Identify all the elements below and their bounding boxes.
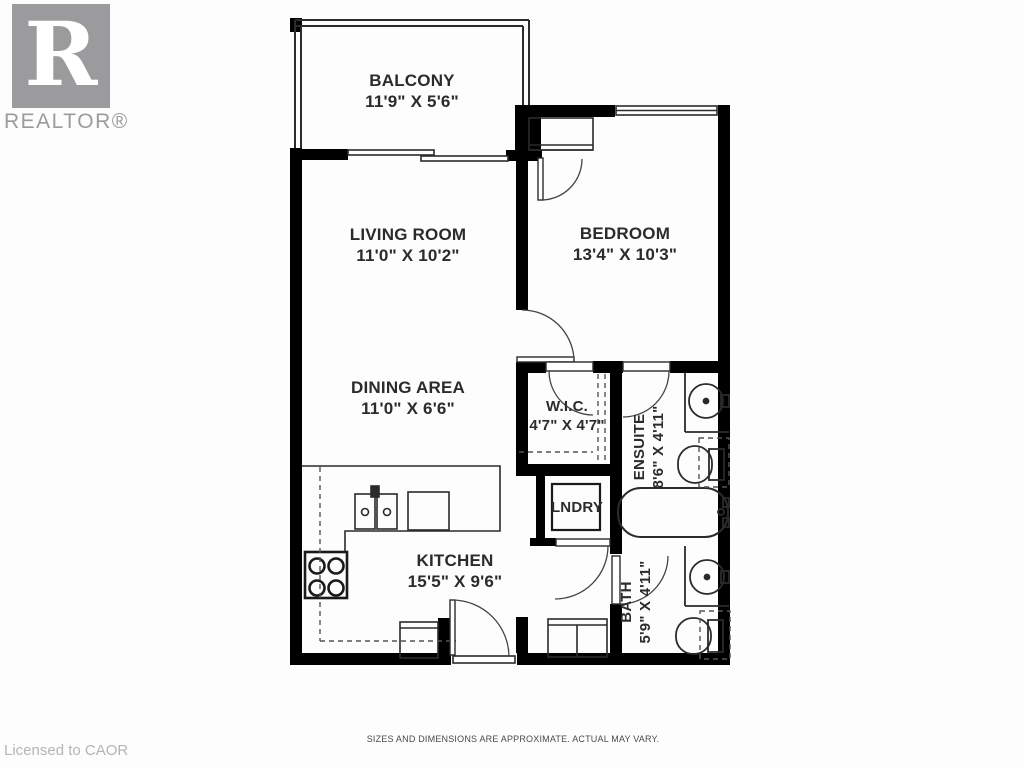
ensuite-name: ENSUITE [631,387,650,507]
wall-left-outer [290,148,302,665]
living-room-dims: 11'0" X 10'2" [308,245,508,266]
wall-wic-bottom [516,464,612,476]
bath-dims: 5'9" X 4'11" [637,542,656,662]
wic-label: W.I.C. 4'7" X 4'7" [507,398,627,436]
dining-area-label: DINING AREA 11'0" X 6'6" [308,377,508,420]
ensuite-sink-drain [704,399,709,404]
stove [305,552,347,598]
bath-label: BATH 5'9" X 4'11" [618,542,658,662]
laundry-name: LNDRY [537,499,617,518]
ensuite-toilet-bowl-icon [678,446,712,483]
bedroom-door-leaf [517,357,574,362]
dining-area-name: DINING AREA [308,377,508,398]
sink-drain-left [362,509,369,516]
entry-door-leaf [450,600,455,655]
wall-living-bedroom-upper [516,116,528,310]
living-room-label: LIVING ROOM 11'0" X 10'2" [308,224,508,267]
laundry-label: LNDRY [537,499,617,518]
wall-balcony-left [290,149,348,160]
bath-toilet-bowl-icon [676,618,711,654]
kitchen-faucet-icon [371,486,379,497]
wall-bottom-left [290,653,451,665]
bedroom-door-arc [522,310,574,359]
burner-2 [329,559,344,574]
bedroom-name: BEDROOM [535,223,715,244]
burner-3 [310,581,325,596]
laundry-door-jamb [556,539,610,546]
kitchen-sink-right [377,494,397,529]
dining-area-dims: 11'0" X 6'6" [308,398,508,419]
wic-door-jamb [546,362,593,371]
ensuite-door-jamb [623,362,670,371]
bath-sink-drain [705,575,710,580]
sliding-door-panel-2 [421,156,508,161]
hall-closet-doors [548,625,607,657]
balcony-label: BALCONY 11'9" X 5'6" [312,70,512,113]
bedroom-label: BEDROOM 13'4" X 10'3" [535,223,715,266]
balcony-name: BALCONY [312,70,512,91]
wall-bedroom-wic-1 [528,361,546,373]
ensuite-label: ENSUITE 8'6" X 4'11" [631,387,671,507]
living-room-name: LIVING ROOM [308,224,508,245]
ensuite-dims: 8'6" X 4'11" [650,387,669,507]
wall-bedroom-wic-2 [593,361,623,373]
licensed-text: Licensed to CAOR [4,742,128,759]
closet-door-arc [541,159,582,200]
floor-plan [0,0,1024,768]
laundry-door-arc [555,546,608,599]
balcony-dims: 11'9" X 5'6" [312,91,512,112]
kitchen-fixtures [302,466,500,552]
wall-entry-jamb [438,618,450,653]
kitchen-name: KITCHEN [355,550,555,571]
disclaimer-text: SIZES AND DIMENSIONS ARE APPROXIMATE. AC… [313,734,713,744]
kitchen-label: KITCHEN 15'5" X 9'6" [355,550,555,593]
wall-hall-stub [516,617,528,653]
sliding-door-panel-1 [348,150,434,155]
kitchen-dims: 15'5" X 9'6" [355,571,555,592]
bath-name: BATH [618,542,637,662]
wall-laundry-bottom-stub [530,538,556,546]
kitchen-sink-left [355,494,375,529]
kitchen-counter [302,466,500,552]
wic-name: W.I.C. [507,398,627,417]
wic-dims: 4'7" X 4'7" [507,417,627,436]
entry-threshold [453,656,515,663]
dishwasher [408,492,449,530]
closet-door-leaf [538,158,543,200]
wall-bedroom-ensuite [670,361,730,373]
burner-1 [310,559,325,574]
entry-door-arc [452,600,509,657]
burner-4 [329,581,344,596]
sink-drain-right [384,509,391,516]
bedroom-dims: 13'4" X 10'3" [535,244,715,265]
